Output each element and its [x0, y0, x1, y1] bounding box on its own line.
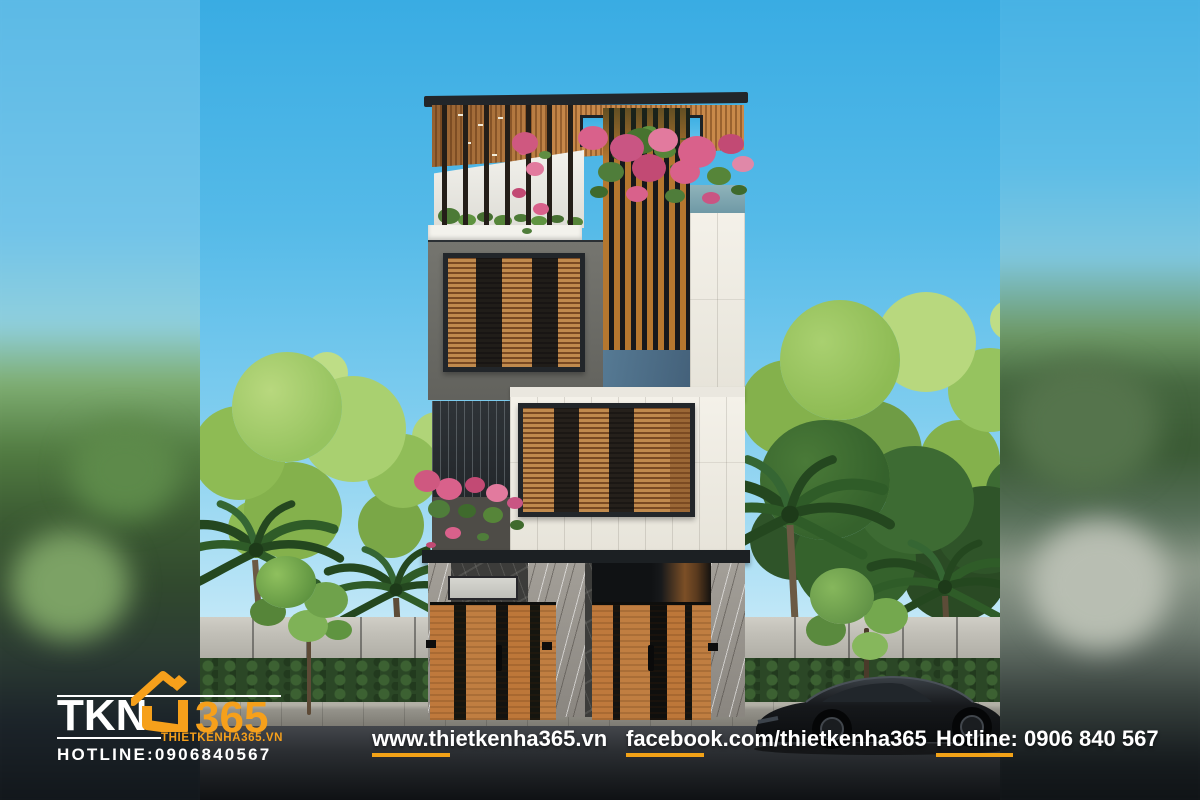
transom-slot-window [448, 576, 518, 600]
gate-handle [648, 645, 654, 671]
footer-hotline: Hotline: 0906 840 567 [936, 726, 1159, 752]
street-tree-canopy-left [256, 556, 316, 608]
blue-glass-panel [603, 350, 690, 388]
bougainvillea-cluster-balcony [414, 470, 440, 492]
blur-blob-green [1010, 360, 1160, 490]
logo-website-small: THIETKENHA365.VN [161, 732, 283, 744]
gate-pillar-lamp [426, 640, 436, 648]
footer-hotline-underline [936, 753, 1013, 757]
street-tree-canopy-right [810, 568, 874, 624]
house [428, 92, 745, 717]
wooden-gate-left [430, 602, 556, 720]
bougainvillea-cluster-left [512, 132, 538, 154]
logo-divider-line-small [57, 737, 161, 739]
bougainvillea-cluster-right [578, 126, 608, 150]
gate-handle [496, 645, 502, 671]
entry-opening-lit-interior [592, 563, 711, 602]
footer-facebook: facebook.com/thietkenha365 [626, 726, 927, 752]
wooden-gate-right [592, 602, 711, 720]
ground-floor-canopy [422, 550, 750, 563]
floor2-metal-bar-screen [432, 401, 510, 497]
floor2-louver-window [518, 403, 695, 517]
tkn365-logo: TKN 365 THIETKENHA365.VN HOTLINE:0906840… [57, 666, 281, 766]
logo-hotline-small: HOTLINE:0906840567 [57, 745, 271, 765]
floor3-louver-window [443, 253, 585, 372]
rooftop-bonsai-tree [624, 128, 658, 154]
footer-facebook-underline [626, 753, 704, 757]
footer-website-underline [372, 753, 450, 757]
white-tile-column [690, 213, 745, 388]
street-tree-trunk [307, 630, 311, 715]
glass-railing-band [690, 185, 745, 213]
palm-tree [865, 543, 1000, 619]
footer-website: www.thietkenha365.vn [372, 726, 607, 752]
house-roof-icon [131, 668, 205, 732]
scene [200, 0, 1000, 800]
rooftop-parapet [428, 225, 582, 241]
marble-pillar [711, 563, 745, 717]
gate-pillar-lamp [542, 642, 552, 650]
floor2-grey-panel [432, 497, 510, 551]
blur-blob-grey [1030, 520, 1170, 650]
blur-blob-green [10, 530, 130, 640]
pergola-hanging-slats [442, 105, 588, 230]
render-canvas: TKN 365 THIETKENHA365.VN HOTLINE:0906840… [0, 0, 1200, 800]
gate-pillar-lamp [708, 643, 718, 651]
blurred-edge-right [1000, 0, 1200, 800]
blur-blob-green [70, 420, 180, 520]
